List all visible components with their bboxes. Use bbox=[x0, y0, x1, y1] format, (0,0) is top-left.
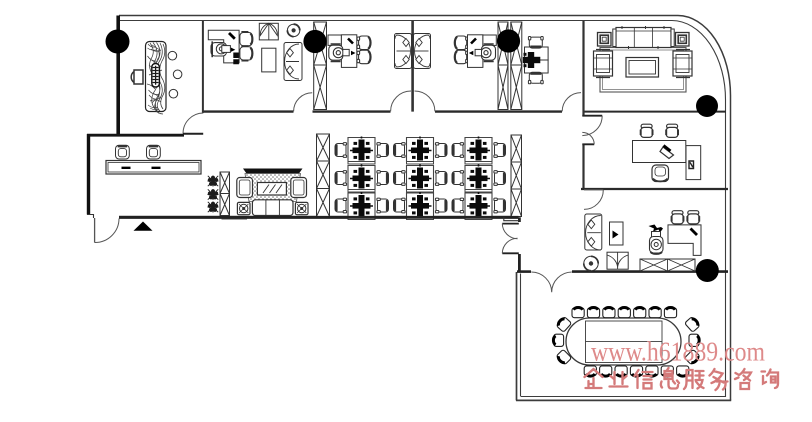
svg-text:www.h61889.com: www.h61889.com bbox=[591, 336, 765, 367]
